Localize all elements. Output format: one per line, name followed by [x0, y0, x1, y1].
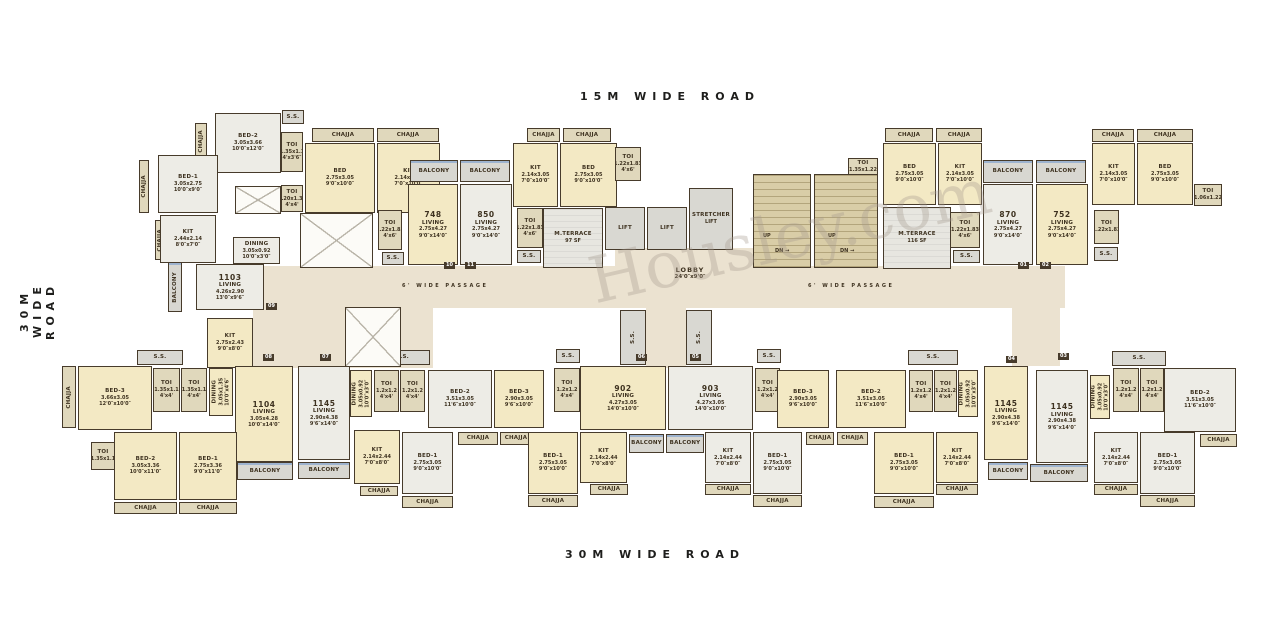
room-label: BED-12.75x3.059'0″x10'0″: [413, 453, 441, 472]
room-label: CHAJJA: [332, 132, 354, 139]
passage-label-left: 6' WIDE PASSAGE: [402, 283, 488, 289]
lobby-label: LOBBY 24'0″x9'0″: [635, 266, 745, 280]
room-chajja-b4: CHAJJA: [402, 496, 453, 508]
room-balcony-748: BALCONY: [410, 160, 458, 182]
room-label: BALCONY: [993, 168, 1024, 175]
room-label: S.S.: [630, 331, 637, 344]
room-label: CHAJJA: [576, 132, 598, 139]
room-label: TOI1.2x1.24'x4': [376, 381, 397, 400]
stair-direction-label: DN →: [775, 248, 789, 254]
room-label: TOI1.2x1.24'x4': [757, 380, 778, 399]
room-label: S.S.: [387, 255, 400, 262]
room-label: TOI1.2x1.24'x4': [1116, 380, 1137, 399]
lobby-dimensions: 24'0″x9'0″: [635, 274, 745, 280]
road-label-left: 30M WIDE ROAD: [18, 255, 57, 365]
room-label: CHAJJA: [397, 132, 419, 139]
room-label: BALCONY: [470, 168, 501, 175]
room-label: KIT2.44x2.148'0″x7'0″: [174, 229, 202, 248]
room-label: CHAJJA: [717, 486, 739, 493]
room-label: TOI1.2x1.24'x4': [911, 381, 932, 400]
room-stub-right: [1012, 308, 1060, 366]
room-label: CHAJJA: [198, 130, 205, 152]
room-label: S.S.: [696, 331, 703, 344]
room-toi-1145c2: TOI1.2x1.24'x4': [1140, 368, 1164, 412]
room-terrace-116: M.TERRACE116 SF: [883, 207, 951, 269]
room-label: CHAJJA: [416, 499, 438, 506]
room-label: LIFT: [618, 225, 632, 232]
room-chajja-1104v: CHAJJA: [62, 366, 76, 428]
room-label: BED2.75x3.059'0″x10'0″: [574, 165, 602, 184]
room-kit-902: KIT2.14x2.447'0″x8'0″: [580, 432, 627, 483]
room-chajja-cl2: CHAJJA: [563, 128, 611, 142]
room-ss-902: S.S.: [556, 349, 580, 363]
room-label: 1103LIVING4.26x2.9013'0″x9'6″: [216, 273, 244, 302]
room-label: CHAJJA: [134, 505, 156, 512]
room-bed-cr: BED2.75x3.059'0″x10'0″: [883, 143, 936, 205]
room-ss-1145c: S.S.: [1112, 351, 1166, 366]
room-label: BED-23.51x3.0511'6″x10'0″: [444, 389, 476, 408]
room-label: CHAJJA: [368, 488, 390, 495]
room-chajja-b3: CHAJJA: [360, 486, 398, 496]
room-toi-cr: TOI1.22x1.834'x6': [950, 212, 980, 248]
room-bed-748: BED2.75x3.059'0″x10'0″: [305, 143, 375, 213]
door-number-06: 06: [636, 354, 647, 361]
room-label: TOI1.35x1.14'x4': [154, 380, 178, 399]
room-label: 902LIVING4.27x3.0514'0″x10'0″: [607, 384, 639, 413]
room-label: CHAJJA: [598, 486, 620, 493]
room-bed1-902: BED-12.75x3.059'0″x10'0″: [528, 432, 578, 494]
room-dining-1104: DINING3.05x1.3510'0″x4'6″: [209, 368, 233, 416]
room-label: CHAJJA: [841, 435, 863, 442]
door-number-10: 10: [444, 262, 455, 269]
room-dining-1145c: DINING3.05x0.9210'0″x3'0″: [1090, 375, 1110, 419]
door-number-04: 04: [1006, 356, 1017, 363]
room-bed2-1145c: BED-23.51x3.0511'6″x10'0″: [1164, 368, 1236, 432]
room-bed2-1103: BED-23.05x3.6610'0″x12'0″: [215, 113, 281, 173]
room-chajja-m4: CHAJJA: [837, 432, 868, 445]
room-label: BED-12.75x3.059'0″x10'0″: [890, 453, 918, 472]
room-chajja-850: CHAJJA: [377, 128, 439, 142]
room-label: S.S.: [927, 354, 940, 361]
room-bed3-1145b: BED-32.90x3.059'6″x10'0″: [777, 370, 829, 428]
room-label: DINING3.05x1.3510'0″x4'6″: [211, 378, 230, 406]
room-shaft-a: [235, 186, 281, 214]
room-toi-1103b: TOI1.20x1.354'x4': [281, 185, 303, 212]
room-label: CHAJJA: [542, 498, 564, 505]
room-ss-1103: S.S.: [282, 110, 304, 124]
room-label: TOI1.22x1.834'x6': [951, 220, 979, 239]
room-bed1-903: BED-12.75x3.059'0″x10'0″: [753, 432, 802, 494]
room-label: DINING3.05x0.9210'0″x3'0″: [1090, 383, 1109, 411]
room-balcony-1103: BALCONY: [168, 262, 182, 312]
room-chajja-m1: CHAJJA: [458, 432, 498, 445]
room-dining-1103: DINING3.05x0.9210'0″x3'0″: [233, 237, 280, 264]
room-toi-752a: TOI1.06x1.22: [1194, 184, 1222, 206]
room-label: DINING3.05x0.9210'0″x3'0″: [242, 241, 270, 260]
room-kit-cr: KIT2.14x3.057'0″x10'0″: [938, 143, 982, 205]
room-chajja-v1: CHAJJA: [139, 160, 149, 213]
room-label: 752LIVING2.75x4.279'0″x14'0″: [1048, 210, 1076, 239]
room-kit-752: KIT2.14x3.057'0″x10'0″: [1092, 143, 1135, 205]
room-label: BED-12.75x3.059'0″x10'0″: [763, 453, 791, 472]
stair-direction-label: UP: [763, 233, 771, 239]
room-ss-cr: S.S.: [953, 250, 980, 263]
room-label: KIT2.14x2.447'0″x8'0″: [714, 448, 742, 467]
room-label: TOI1.35x1.22: [849, 160, 877, 173]
room-lift-2: LIFT: [647, 207, 687, 250]
room-label: KIT2.14x3.057'0″x10'0″: [521, 165, 549, 184]
room-label: BED-23.05x3.6610'0″x12'0″: [232, 133, 264, 152]
room-label: CHAJJA: [898, 132, 920, 139]
room-label: BED-23.05x3.3610'0″x11'0″: [130, 456, 162, 475]
room-label: TOI1.2x1.24'x4': [935, 381, 956, 400]
room-toi-902: TOI1.2x1.24'x4': [554, 368, 580, 412]
room-label: S.S.: [154, 354, 167, 361]
room-bed-cl: BED2.75x3.059'0″x10'0″: [560, 143, 617, 207]
room-shaft-c: [345, 307, 401, 367]
room-lift-1: LIFT: [605, 207, 645, 250]
room-label: BALCONY: [250, 468, 281, 475]
room-label: BALCONY: [993, 468, 1024, 475]
room-label: 748LIVING2.75x4.279'0″x14'0″: [419, 210, 447, 239]
room-chajja-902b: CHAJJA: [528, 495, 578, 507]
room-chajja-748: CHAJJA: [312, 128, 374, 142]
room-chajja-902a: CHAJJA: [590, 484, 628, 495]
room-label: CHAJJA: [1105, 486, 1127, 493]
room-toi-748: TOI1.22x1.834'x6': [378, 210, 402, 250]
room-label: DINING3.05x0.9210'0″x3'0″: [958, 379, 977, 407]
room-label: S.S.: [763, 353, 776, 360]
room-ss-748: S.S.: [382, 252, 404, 265]
room-chajja-752b: CHAJJA: [1137, 129, 1193, 142]
room-ss-cl: S.S.: [517, 250, 541, 263]
room-stretcher-lift: STRETCHERLIFT: [689, 188, 733, 250]
room-bed1-1104: BED-12.75x3.369'0″x11'0″: [179, 432, 237, 500]
room-toi-1104b: TOI1.35x1.14'x4': [181, 368, 207, 412]
door-number-01: 01: [1018, 262, 1029, 269]
room-chajja-cl1: CHAJJA: [527, 128, 560, 142]
room-label: BALCONY: [172, 272, 179, 303]
room-chajja-cr1: CHAJJA: [885, 128, 933, 142]
room-label: 1104LIVING3.05x4.2810'0″x14'0″: [248, 400, 280, 429]
room-kit-1145c: KIT2.14x2.447'0″x8'0″: [1094, 432, 1138, 483]
room-toi-1145a2: TOI1.2x1.24'x4': [400, 370, 425, 412]
room-balcony-903: BALCONY: [666, 434, 704, 453]
room-label: BALCONY: [670, 440, 701, 447]
room-label: CHAJJA: [893, 499, 915, 506]
room-balcony-1104: BALCONY: [237, 462, 293, 480]
door-number-11: 11: [465, 262, 476, 269]
room-kit-1145b: KIT2.14x2.447'0″x8'0″: [936, 432, 978, 483]
room-balcony-902: BALCONY: [629, 434, 664, 453]
room-label: TOI1.2x1.24'x4': [557, 380, 578, 399]
room-label: BED-32.90x3.059'6″x10'0″: [789, 389, 817, 408]
room-living-1145b: 1145LIVING2.90x4.389'6″x14'0″: [984, 366, 1028, 460]
room-toi-1104a: TOI1.35x1.14'x4': [153, 368, 180, 412]
room-chajja-903a: CHAJJA: [705, 484, 751, 495]
room-chajja-752a: CHAJJA: [1092, 129, 1134, 142]
room-label: KIT2.75x2.439'0″x8'0″: [216, 333, 244, 352]
room-label: S.S.: [523, 253, 536, 260]
room-toi-1104c: TOI1.35x1.1: [91, 442, 115, 470]
passage-label-right: 6' WIDE PASSAGE: [808, 283, 894, 289]
room-label: KIT2.14x3.057'0″x10'0″: [946, 164, 974, 183]
room-label: LIFT: [660, 225, 674, 232]
room-kit-1145a: KIT2.14x2.447'0″x8'0″: [354, 430, 400, 484]
door-number-03: 03: [1058, 353, 1069, 360]
room-label: S.S.: [562, 353, 575, 360]
room-balcony-1145a: BALCONY: [298, 462, 350, 479]
room-chajja-m5: CHAJJA: [1200, 434, 1237, 447]
room-label: CHAJJA: [505, 435, 527, 442]
room-label: CHAJJA: [1207, 437, 1229, 444]
road-label-bottom: 30M WIDE ROAD: [550, 548, 760, 561]
room-label: KIT2.14x2.447'0″x8'0″: [1102, 448, 1130, 467]
room-living-1145c: 1145LIVING2.90x4.389'6″x14'0″: [1036, 370, 1088, 463]
room-shaft-b: [300, 213, 373, 268]
room-bed3-1145a: BED-32.90x3.059'6″x10'0″: [494, 370, 544, 428]
room-toi-cl1: TOI1.22x1.834'x6': [615, 147, 641, 181]
room-label: KIT2.14x3.057'0″x10'0″: [1099, 164, 1127, 183]
room-label: TOI1.20x1.354'x4': [281, 189, 303, 208]
floor-plan: 15M WIDE ROAD 30M WIDE ROAD 30M WIDE ROA…: [0, 0, 1280, 631]
room-label: TOI1.22x1.83: [1094, 220, 1119, 233]
room-living-870: 870LIVING2.75x4.279'0″x14'0″: [983, 184, 1033, 265]
room-chajja-1104a: CHAJJA: [114, 502, 177, 514]
room-label: KIT2.14x2.447'0″x8'0″: [590, 448, 618, 467]
room-chajja-m3: CHAJJA: [806, 432, 834, 445]
room-label: TOI1.35x1.14'x4': [182, 380, 206, 399]
room-label: CHAJJA: [1154, 132, 1176, 139]
room-bed1-1145a: BED-12.75x3.059'0″x10'0″: [402, 432, 453, 494]
room-label: BED-12.75x3.369'0″x11'0″: [194, 456, 222, 475]
room-label: CHAJJA: [66, 386, 73, 408]
door-number-09: 09: [266, 303, 277, 310]
room-label: 1145LIVING2.90x4.389'6″x14'0″: [310, 399, 338, 428]
room-ss-752: S.S.: [1094, 247, 1118, 261]
room-label: BALCONY: [1046, 168, 1077, 175]
room-balcony-1145b: BALCONY: [988, 462, 1028, 480]
room-bed1-1145b: BED-12.75x3.059'0″x10'0″: [874, 432, 934, 494]
room-chajja-b11: CHAJJA: [1094, 484, 1138, 495]
room-label: S.S.: [287, 114, 300, 121]
room-living-748: 748LIVING2.75x4.279'0″x14'0″: [408, 184, 458, 265]
room-label: S.S.: [1133, 355, 1146, 362]
room-kit-1103: KIT2.44x2.148'0″x7'0″: [160, 215, 216, 263]
room-living-1104: 1104LIVING3.05x4.2810'0″x14'0″: [235, 366, 293, 462]
room-bed2-1145b: BED-23.51x3.0511'6″x10'0″: [836, 370, 906, 428]
room-ss-903: S.S.: [757, 349, 781, 363]
room-label: S.S.: [1100, 251, 1113, 258]
room-living-1145a: 1145LIVING2.90x4.389'6″x14'0″: [298, 366, 350, 460]
room-label: BED-13.05x2.7510'0″x9'0″: [174, 174, 202, 193]
room-bed2-1104: BED-23.05x3.3610'0″x11'0″: [114, 432, 177, 500]
room-kit-cl: KIT2.14x3.057'0″x10'0″: [513, 143, 558, 207]
room-toi-1145a1: TOI1.2x1.24'x4': [374, 370, 399, 412]
room-bed1-1145c: BED-12.75x3.059'0″x10'0″: [1140, 432, 1195, 494]
room-label: BED-12.75x3.059'0″x10'0″: [1153, 453, 1181, 472]
room-chajja-b12: CHAJJA: [1140, 495, 1195, 507]
room-label: BED-12.75x3.059'0″x10'0″: [539, 453, 567, 472]
room-label: STRETCHERLIFT: [692, 212, 730, 225]
room-label: CHAJJA: [809, 435, 831, 442]
room-label: BED2.75x3.059'0″x10'0″: [1151, 164, 1179, 183]
room-label: BED2.75x3.059'0″x10'0″: [895, 164, 923, 183]
room-label: CHAJJA: [1156, 498, 1178, 505]
room-living-902: 902LIVING4.27x3.0514'0″x10'0″: [580, 366, 666, 430]
room-label: DINING3.05x0.9210'0″x3'0″: [351, 379, 370, 407]
door-number-08: 08: [263, 354, 274, 361]
room-toi-1103a: TOI1.35x1.14'x3'6″: [281, 132, 303, 172]
room-chajja-903b: CHAJJA: [753, 495, 802, 507]
lobby-title: LOBBY: [635, 266, 745, 274]
room-label: BED-23.51x3.0511'6″x10'0″: [1184, 390, 1216, 409]
door-number-07: 07: [320, 354, 331, 361]
room-label: 903LIVING4.27x3.0514'0″x10'0″: [695, 384, 727, 413]
room-label: M.TERRACE97 SF: [554, 231, 591, 244]
room-balcony-850: BALCONY: [460, 160, 510, 182]
room-label: CHAJJA: [946, 486, 968, 493]
room-terrace-97: M.TERRACE97 SF: [543, 208, 603, 268]
room-label: S.S.: [960, 253, 973, 260]
room-label: 870LIVING2.75x4.279'0″x14'0″: [994, 210, 1022, 239]
room-label: BED2.75x3.059'0″x10'0″: [326, 168, 354, 187]
room-label: BALCONY: [1044, 470, 1075, 477]
room-toi-1145b1: TOI1.2x1.24'x4': [909, 370, 933, 412]
door-number-02: 02: [1040, 262, 1051, 269]
room-toi-1145c1: TOI1.2x1.24'x4': [1113, 368, 1139, 412]
room-toi-1145b2: TOI1.2x1.24'x4': [934, 370, 957, 412]
room-stub-center: [646, 308, 686, 368]
room-bed2-1145a: BED-23.51x3.0511'6″x10'0″: [428, 370, 492, 428]
stair-direction-label: DN →: [840, 248, 854, 254]
road-label-top: 15M WIDE ROAD: [565, 90, 775, 103]
room-label: BALCONY: [419, 168, 450, 175]
room-chajja-1104b: CHAJJA: [179, 502, 237, 514]
room-balcony-752: BALCONY: [1036, 160, 1086, 183]
room-label: CHAJJA: [467, 435, 489, 442]
room-toi-cl2: TOI1.22x1.834'x6': [517, 208, 543, 248]
room-label: TOI1.35x1.14'x3'6″: [281, 142, 303, 161]
room-label: CHAJJA: [766, 498, 788, 505]
room-label: CHAJJA: [197, 505, 219, 512]
room-label: TOI1.2x1.24'x4': [402, 381, 423, 400]
room-bed-752: BED2.75x3.059'0″x10'0″: [1137, 143, 1193, 205]
room-toi-752b: TOI1.22x1.83: [1094, 210, 1119, 244]
room-living-752: 752LIVING2.75x4.279'0″x14'0″: [1036, 184, 1088, 265]
room-label: TOI1.35x1.1: [91, 449, 115, 462]
room-label: BALCONY: [631, 440, 662, 447]
room-dining-1145b: DINING3.05x0.9210'0″x3'0″: [958, 370, 978, 417]
room-chajja-cr2: CHAJJA: [936, 128, 982, 142]
room-label: M.TERRACE116 SF: [898, 231, 935, 244]
room-kit-1104: KIT2.75x2.439'0″x8'0″: [207, 318, 253, 368]
room-chajja-v0: CHAJJA: [195, 123, 207, 159]
stair-direction-label: UP: [828, 233, 836, 239]
room-label: BED-23.51x3.0511'6″x10'0″: [855, 389, 887, 408]
room-bed3-1104: BED-33.66x3.0512'0″x10'0″: [78, 366, 152, 430]
room-chajja-b10: CHAJJA: [936, 484, 978, 495]
door-number-05: 05: [690, 354, 701, 361]
room-label: 850LIVING2.75x4.279'0″x14'0″: [472, 210, 500, 239]
room-living-1103: 1103LIVING4.26x2.9013'0″x9'6″: [196, 264, 264, 310]
room-label: TOI1.22x1.834'x6': [615, 154, 641, 173]
room-label: BED-33.66x3.0512'0″x10'0″: [99, 388, 131, 407]
room-ss-1145b: S.S.: [908, 350, 958, 365]
room-label: CHAJJA: [948, 132, 970, 139]
room-label: TOI1.2x1.24'x4': [1142, 380, 1163, 399]
room-chajja-b9: CHAJJA: [874, 496, 934, 508]
room-label: TOI1.22x1.834'x6': [517, 218, 543, 237]
room-kit-903: KIT2.14x2.447'0″x8'0″: [705, 432, 751, 483]
room-label: KIT2.14x2.447'0″x8'0″: [943, 448, 971, 467]
room-living-903: 903LIVING4.27x3.0514'0″x10'0″: [668, 366, 753, 430]
room-label: TOI1.22x1.834'x6': [378, 220, 402, 239]
room-ss-1104: S.S.: [137, 350, 183, 365]
room-label: BED-32.90x3.059'6″x10'0″: [505, 389, 533, 408]
room-living-850: 850LIVING2.75x4.279'0″x14'0″: [460, 184, 512, 265]
room-label: 1145LIVING2.90x4.389'6″x14'0″: [992, 399, 1020, 428]
room-label: KIT2.14x2.447'0″x8'0″: [363, 447, 391, 466]
room-dining-1145a: DINING3.05x0.9210'0″x3'0″: [350, 370, 372, 417]
room-label: BALCONY: [309, 467, 340, 474]
room-label: CHAJJA: [141, 175, 148, 197]
room-balcony-1145c: BALCONY: [1030, 464, 1088, 482]
room-label: 1145LIVING2.90x4.389'6″x14'0″: [1048, 402, 1076, 431]
room-bed1-1103: BED-13.05x2.7510'0″x9'0″: [158, 155, 218, 213]
room-label: CHAJJA: [532, 132, 554, 139]
room-label: TOI1.06x1.22: [1194, 188, 1222, 201]
room-balcony-870: BALCONY: [983, 160, 1033, 183]
room-label: CHAJJA: [1102, 132, 1124, 139]
